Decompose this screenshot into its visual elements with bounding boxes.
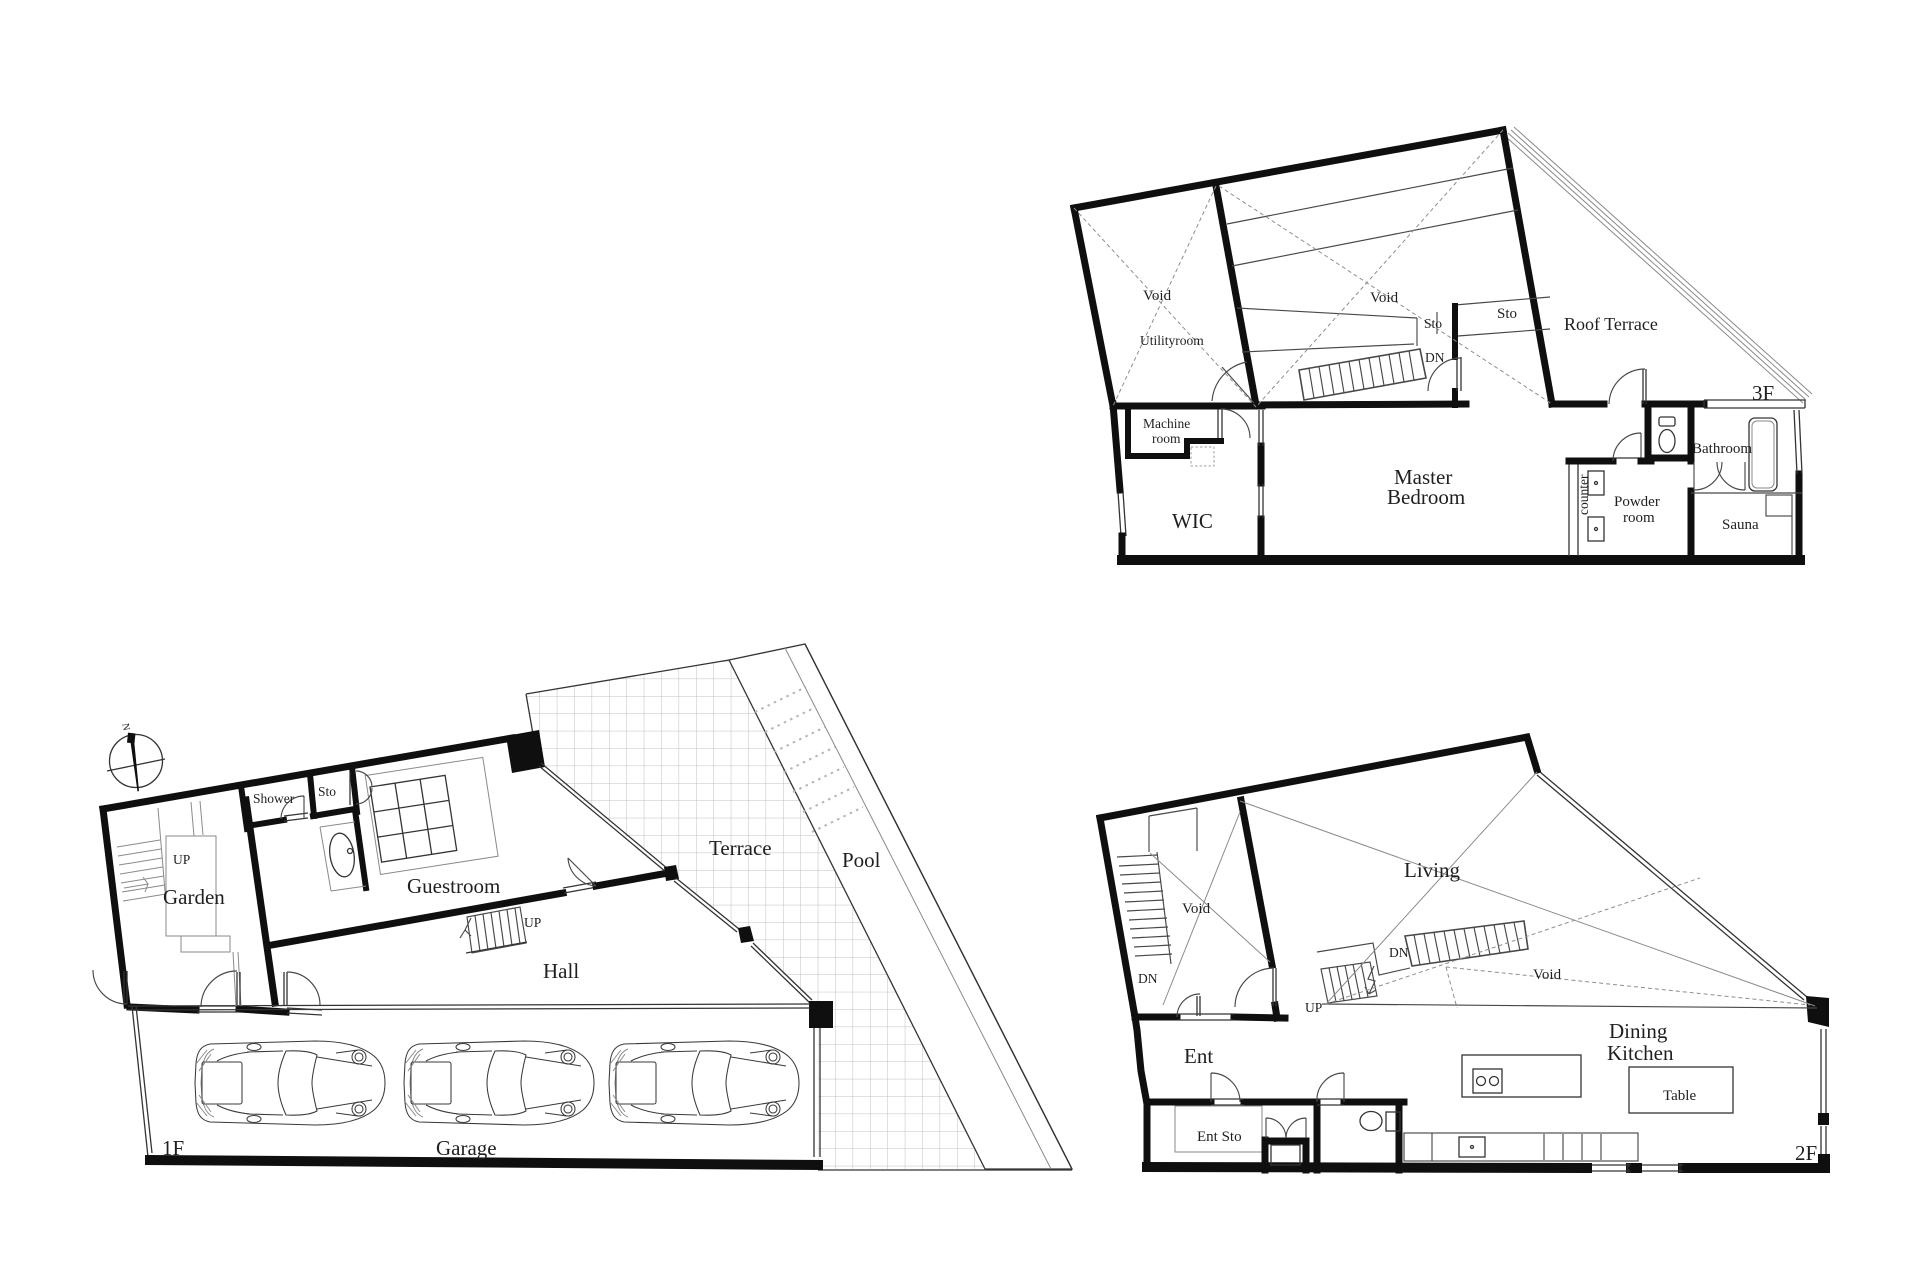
svg-text:Table: Table	[1663, 1088, 1696, 1104]
svg-text:DN: DN	[1389, 945, 1409, 960]
svg-text:Ent: Ent	[1184, 1044, 1213, 1068]
svg-text:Sauna: Sauna	[1722, 517, 1759, 533]
svg-text:Garden: Garden	[163, 885, 225, 909]
svg-text:2F: 2F	[1795, 1141, 1817, 1165]
svg-text:Powder: Powder	[1614, 494, 1660, 510]
svg-text:UP: UP	[173, 852, 190, 867]
svg-text:UP: UP	[1305, 1000, 1322, 1015]
svg-text:Void: Void	[1182, 901, 1211, 917]
svg-text:room: room	[1152, 431, 1181, 446]
svg-text:DN: DN	[1425, 350, 1445, 365]
svg-text:Pool: Pool	[842, 848, 881, 872]
svg-text:UP: UP	[524, 915, 541, 930]
svg-text:Void: Void	[1370, 290, 1399, 306]
svg-text:Hall: Hall	[543, 959, 579, 983]
svg-text:Sto: Sto	[1424, 316, 1442, 331]
svg-text:Void: Void	[1533, 967, 1562, 983]
svg-text:Ent Sto: Ent Sto	[1197, 1129, 1242, 1145]
svg-text:Shower: Shower	[253, 791, 295, 806]
svg-text:Garage: Garage	[436, 1136, 497, 1160]
svg-text:Bedroom: Bedroom	[1387, 485, 1465, 509]
svg-text:3F: 3F	[1752, 381, 1774, 405]
svg-text:Sto: Sto	[318, 784, 336, 799]
svg-text:Sto: Sto	[1497, 306, 1517, 322]
svg-text:Living: Living	[1404, 858, 1460, 882]
svg-text:Guestroom: Guestroom	[407, 874, 500, 898]
svg-text:Terrace: Terrace	[709, 836, 772, 860]
svg-text:Kitchen: Kitchen	[1607, 1041, 1674, 1065]
svg-text:Roof Terrace: Roof Terrace	[1564, 314, 1658, 334]
svg-text:Machine: Machine	[1143, 416, 1190, 431]
svg-text:room: room	[1623, 510, 1655, 526]
svg-text:Void: Void	[1143, 288, 1172, 304]
svg-text:DN: DN	[1138, 971, 1158, 986]
svg-text:counter: counter	[1576, 474, 1591, 515]
svg-text:Utilityroom: Utilityroom	[1140, 333, 1204, 348]
svg-text:1F: 1F	[162, 1136, 184, 1160]
svg-text:WIC: WIC	[1172, 509, 1213, 533]
svg-text:Bathroom: Bathroom	[1692, 441, 1752, 457]
svg-text:Dining: Dining	[1609, 1019, 1668, 1043]
